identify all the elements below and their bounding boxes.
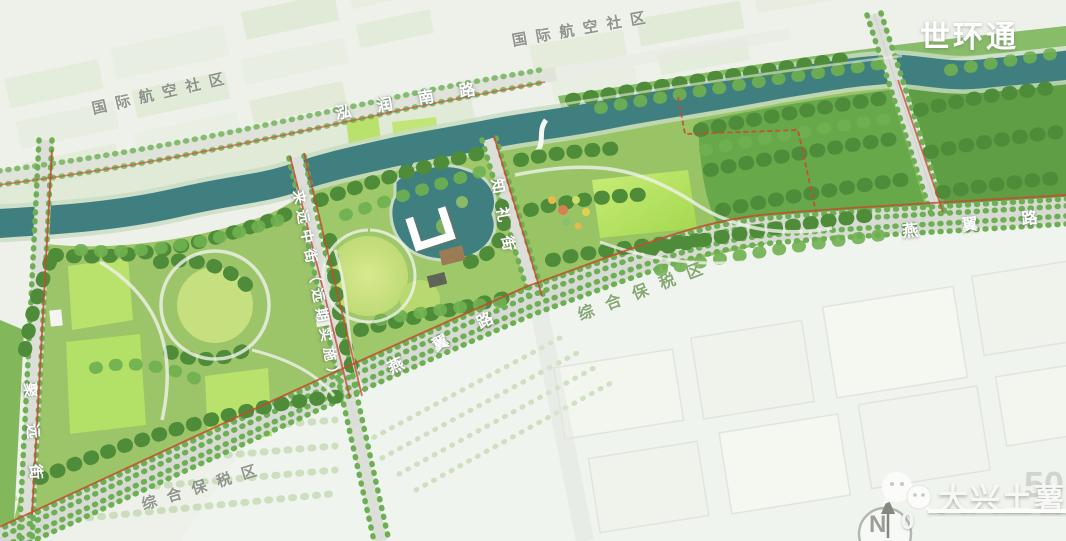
masterplan-map: 国际航空社区 国际航空社区 泓润南路 知礼街 来远中街（远期实施） 聚远街 燕翼…	[0, 0, 1066, 541]
compass-north-label: N	[869, 511, 886, 539]
watermark-underline	[928, 509, 1066, 513]
map-artwork	[0, 0, 1066, 541]
scale-start-value: 0	[901, 508, 914, 536]
site-logo: 世环通	[920, 12, 1019, 56]
